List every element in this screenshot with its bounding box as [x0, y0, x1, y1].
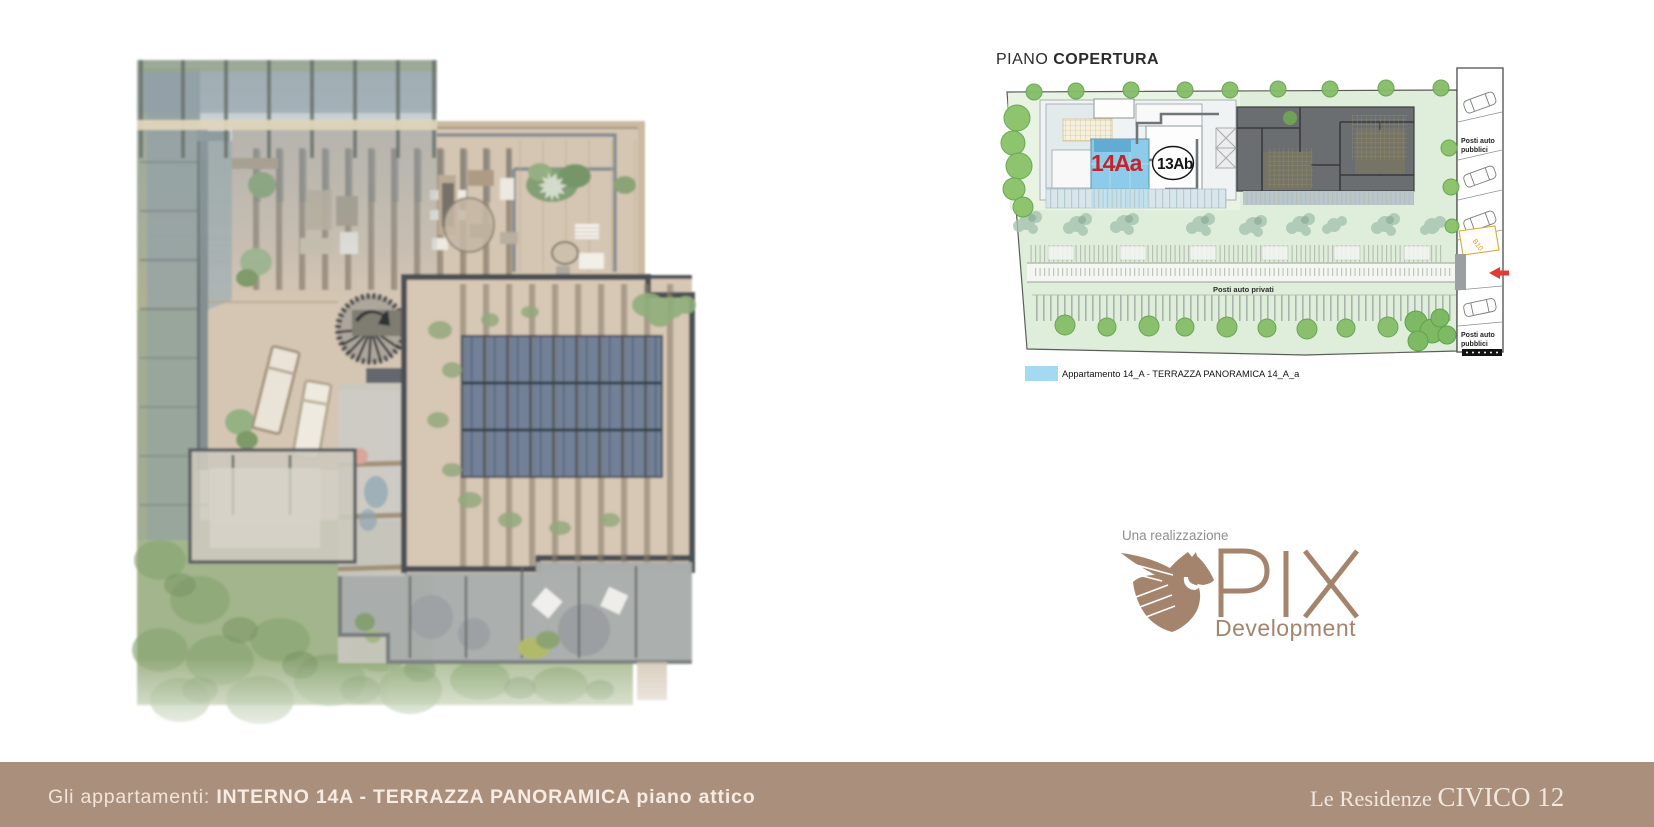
- svg-text:Posti auto privati: Posti auto privati: [1213, 285, 1274, 294]
- svg-text:pubblici: pubblici: [1461, 147, 1488, 154]
- svg-text:14Aa: 14Aa: [1091, 150, 1143, 176]
- svg-text:Development: Development: [1215, 615, 1356, 641]
- svg-text:pubblici: pubblici: [1461, 341, 1488, 348]
- svg-text:Posti auto: Posti auto: [1461, 138, 1495, 145]
- svg-text:13Ab: 13Ab: [1157, 156, 1193, 173]
- svg-text:Posti auto: Posti auto: [1461, 332, 1495, 339]
